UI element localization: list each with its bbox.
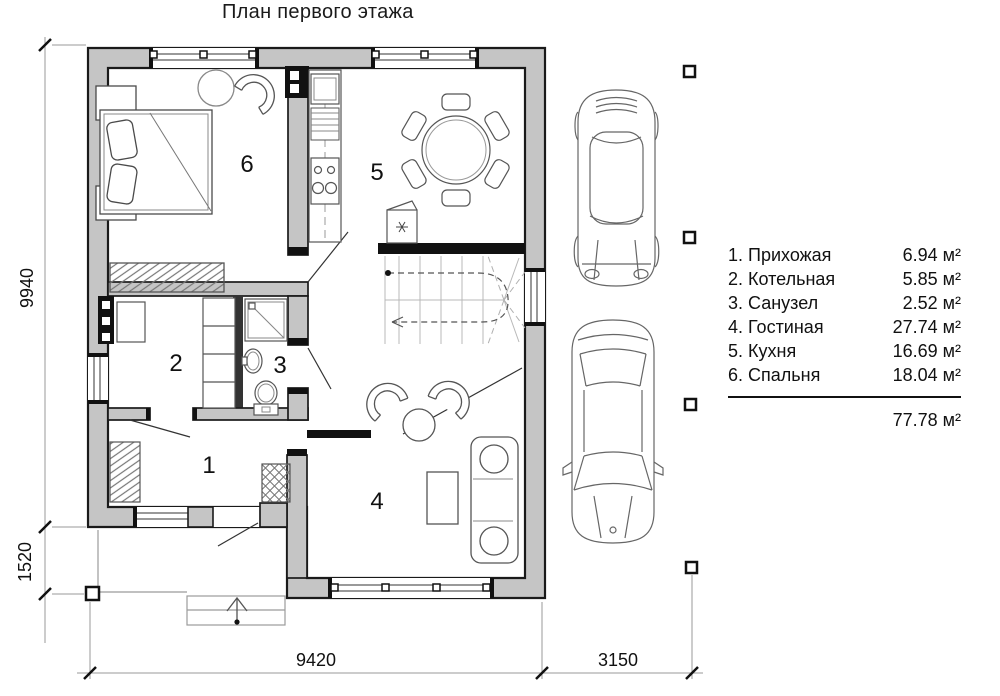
- wall-stair-north-beam: [378, 243, 525, 254]
- dim-carport-width: 3150: [598, 650, 638, 670]
- dim-house-width: 9420: [296, 650, 336, 670]
- wall-pier: [188, 507, 213, 527]
- room-label-boiler: 2: [169, 350, 182, 377]
- carport-post: [685, 399, 696, 410]
- sofa: [471, 437, 518, 563]
- carport-posts: [684, 66, 697, 573]
- wall-rooms-south-left: [108, 408, 150, 420]
- carport-post: [684, 66, 695, 77]
- vent-shaft-boiler: [98, 296, 114, 344]
- car-sports: [574, 90, 659, 286]
- room-label-hall: 1: [202, 452, 215, 479]
- boiler: [117, 302, 145, 342]
- carport-post: [684, 232, 695, 243]
- armchair-1: [359, 375, 409, 422]
- hallway-furniture: [110, 442, 290, 502]
- shower: [245, 299, 287, 341]
- wardrobe-bedroom: [110, 263, 224, 292]
- toilet: [254, 381, 278, 415]
- kitchen-sink: [311, 74, 339, 104]
- rug: [198, 70, 234, 106]
- room-label-bedroom: 6: [240, 151, 253, 178]
- porch: [98, 530, 285, 625]
- shelving: [203, 298, 235, 408]
- dim-house-height: 9940: [17, 268, 37, 308]
- floor-plan-drawing: 1 2 3 4 5 6: [0, 0, 1000, 696]
- wall-stair-south: [307, 430, 371, 438]
- fridge: [387, 201, 417, 243]
- dish-drainer: [311, 108, 339, 140]
- car-sedan: [563, 320, 663, 543]
- coffee-table: [427, 472, 458, 524]
- window-stairs: [525, 268, 545, 326]
- door-swing-bathroom: [308, 348, 331, 389]
- room-label-kitchen: 5: [370, 159, 383, 186]
- entrance-arrow: [227, 598, 247, 625]
- window-boiler: [88, 353, 108, 404]
- side-table: [403, 409, 435, 441]
- staircase: [385, 256, 525, 344]
- window-living: [328, 578, 494, 598]
- vent-shaft-kitchen: [285, 66, 309, 98]
- stove: [311, 158, 339, 204]
- wall-bath-east-top: [288, 296, 308, 345]
- dining-table: [400, 94, 511, 206]
- bed: [100, 110, 212, 214]
- floor-plan-page: План первого этажа 1. Прихожая6.94 м² 2.…: [0, 0, 1000, 696]
- window-kitchen: [371, 48, 479, 68]
- dim-porch-height: 1520: [15, 542, 35, 582]
- kitchen-furniture: [309, 70, 511, 243]
- pouf: [262, 464, 290, 502]
- stair-walk-line: [385, 270, 508, 327]
- wall-entrance-step: [260, 503, 287, 527]
- wardrobe-hall: [110, 442, 140, 502]
- living-room-furniture: [359, 373, 518, 563]
- porch-post: [86, 587, 99, 600]
- door-swing-boiler: [130, 420, 190, 437]
- bathroom-sink: [242, 349, 262, 373]
- armchair-bedroom: [234, 66, 283, 115]
- carport-post: [686, 562, 697, 573]
- window-bedroom: [149, 48, 259, 68]
- bedroom-furniture: [96, 66, 283, 292]
- car-mirrors: [563, 462, 663, 475]
- window-hall: [133, 507, 192, 527]
- room-label-bath: 3: [273, 352, 286, 379]
- room-label-living: 4: [370, 488, 383, 515]
